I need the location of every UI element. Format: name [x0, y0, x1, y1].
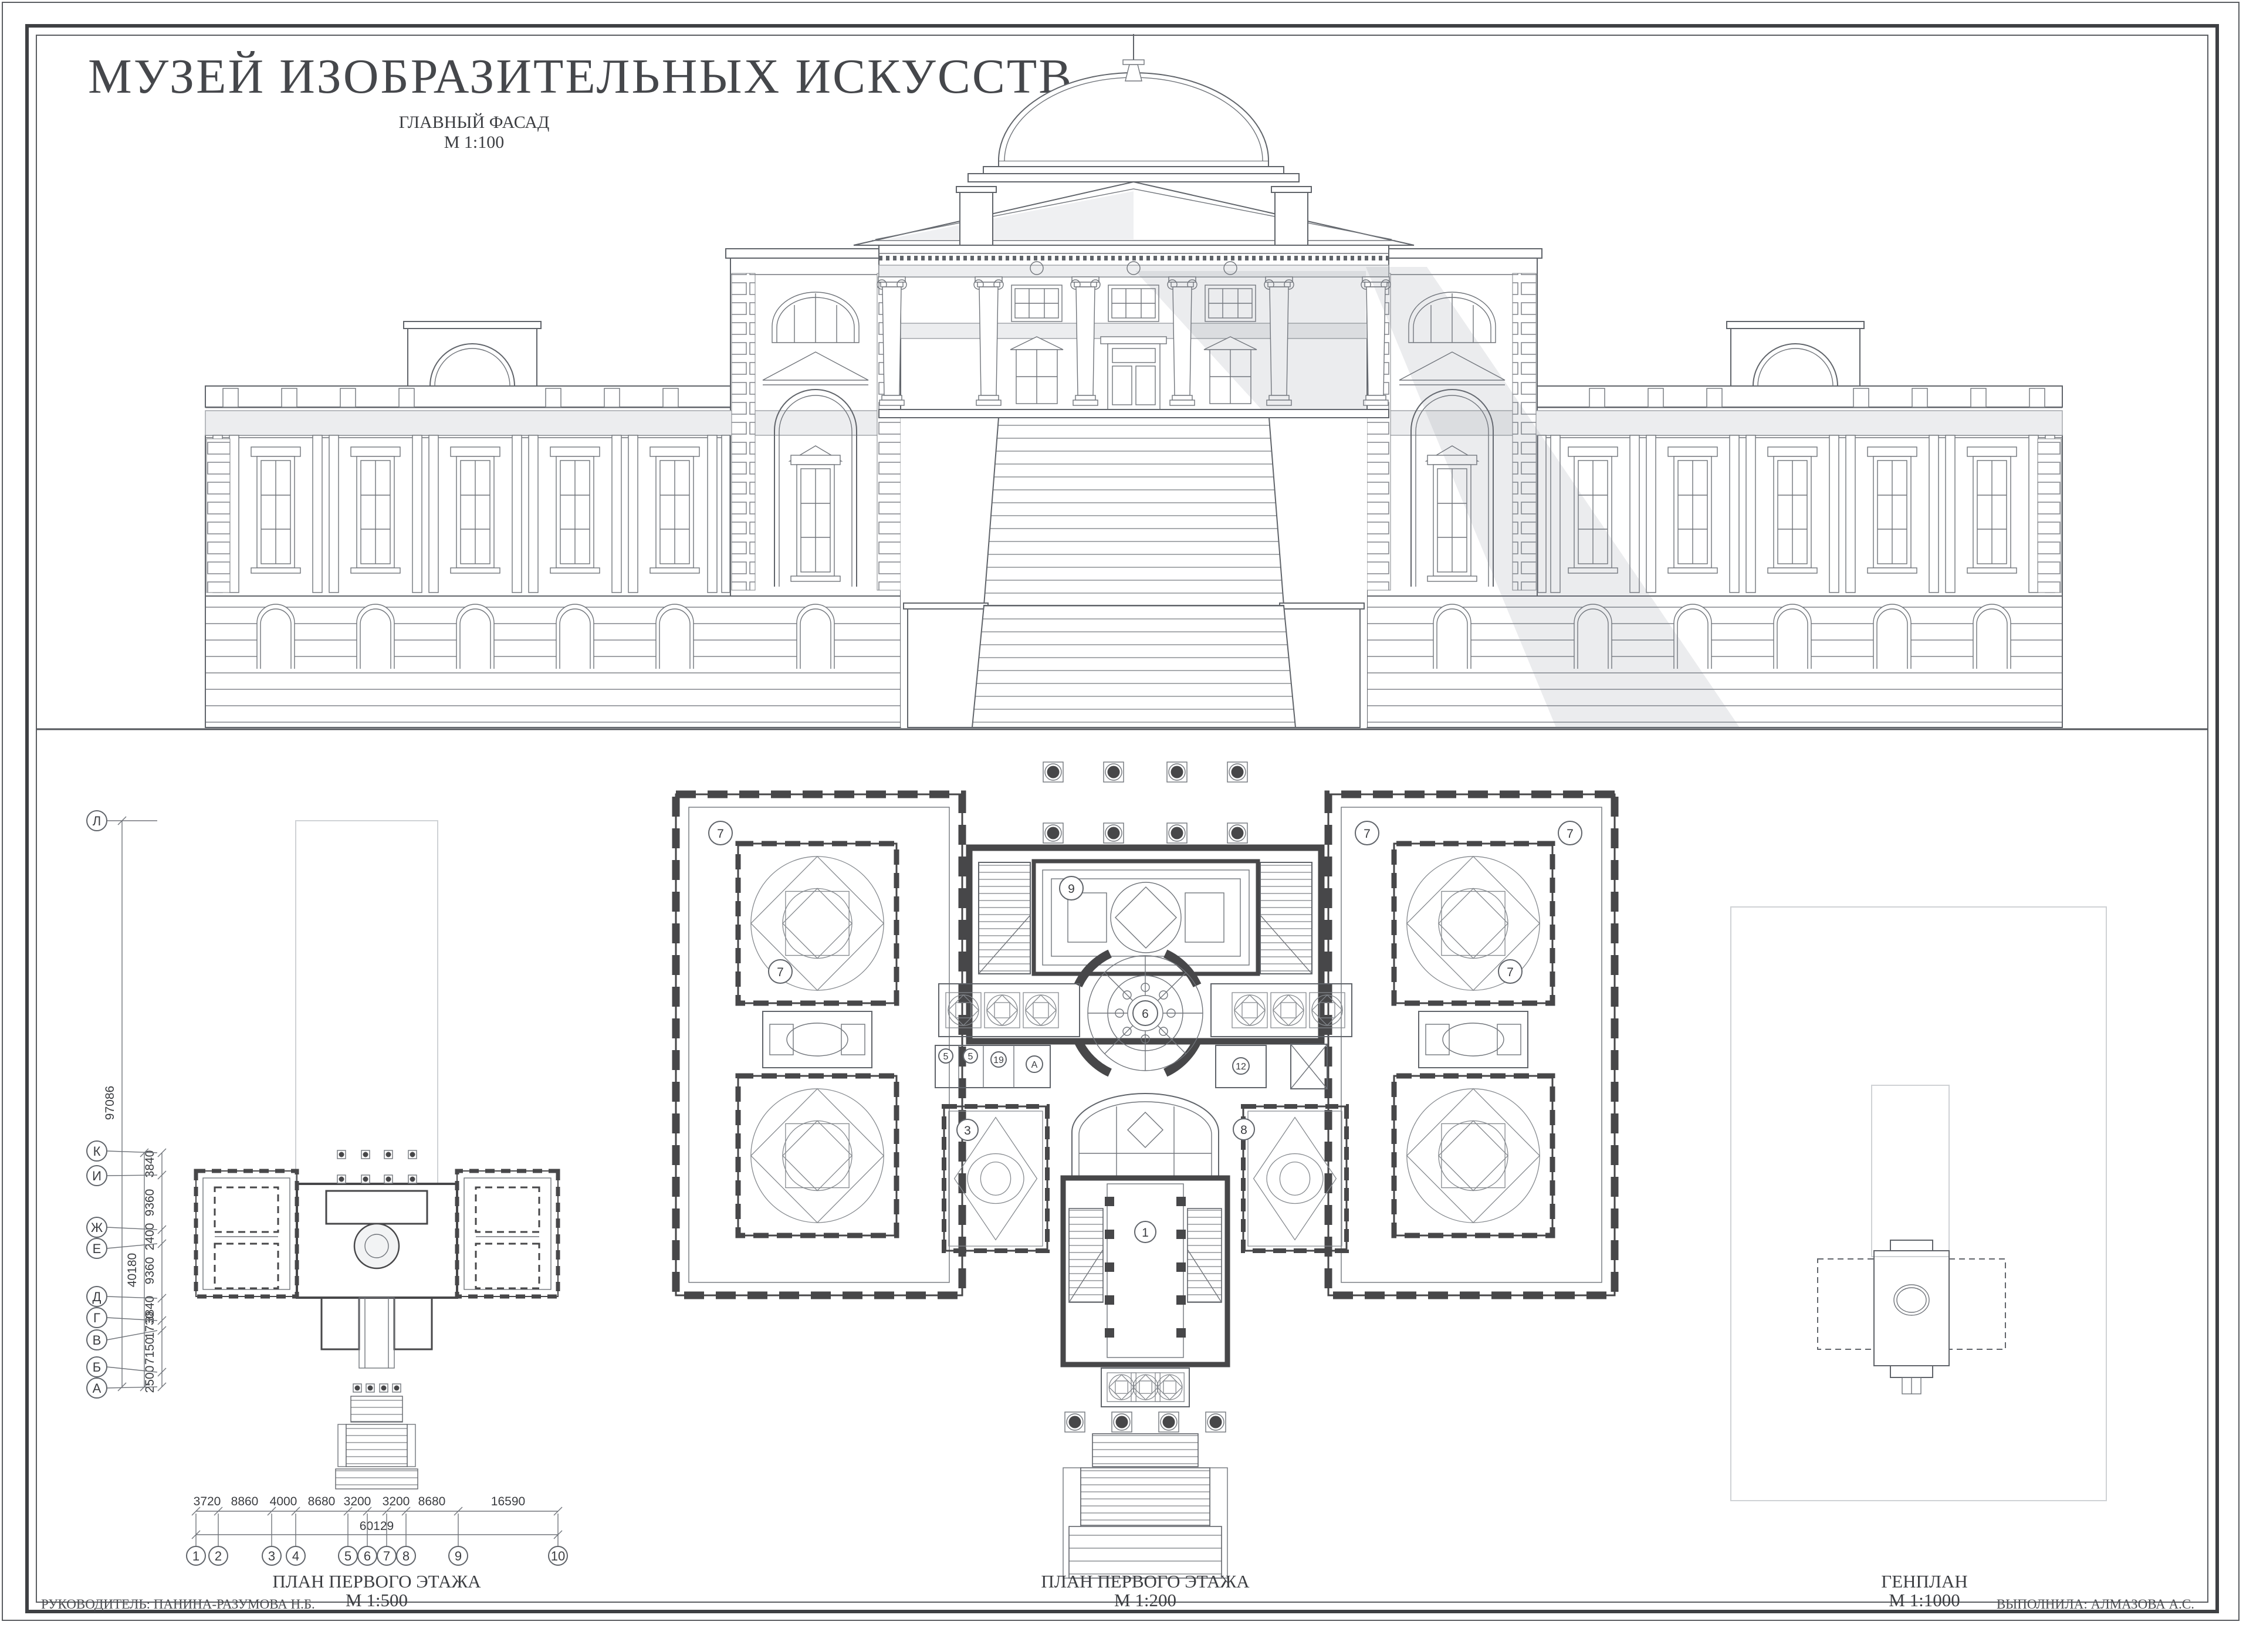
axis-row-label: Г [93, 1311, 100, 1325]
axis-col-label: 6 [364, 1549, 371, 1563]
dim-row-seg: 2500 [143, 1366, 157, 1393]
axis-col-label: 2 [215, 1549, 222, 1563]
facade-scale: М 1:100 [444, 133, 505, 152]
axis-col-label: 3 [268, 1549, 275, 1563]
room-label: 5 [968, 1052, 973, 1062]
axis-col-label: 9 [455, 1549, 462, 1563]
axis-row-label: Ж [91, 1220, 103, 1235]
plan200-scale: М 1:200 [1114, 1590, 1176, 1610]
axis-row-label: Б [93, 1360, 101, 1375]
dim-row-seg: 2400 [143, 1223, 157, 1251]
axis-row-label: В [93, 1333, 102, 1348]
axis-col-label: 8 [402, 1549, 410, 1563]
captions: ПЛАН ПЕРВОГО ЭТАЖА М 1:500 ПЛАН ПЕРВОГО … [272, 1571, 1967, 1610]
drawing-sheet: МУЗЕЙ ИЗОБРАЗИТЕЛЬНЫХ ИСКУССТВ ГЛАВНЫЙ Ф… [0, 0, 2253, 1652]
vestibule-columns [1105, 1197, 1186, 1338]
room-label: 7 [1364, 827, 1371, 841]
row-axis: 97086 40180 3840 9360 2400 9360 3840 173… [87, 811, 166, 1398]
axis-col-label: 1 [192, 1549, 199, 1563]
room-label: 8 [1240, 1123, 1247, 1137]
axis-col-label: 4 [292, 1549, 299, 1563]
sheet-canvas: МУЗЕЙ ИЗОБРАЗИТЕЛЬНЫХ ИСКУССТВ ГЛАВНЫЙ Ф… [0, 0, 2253, 1652]
col-axis: 3720 8860 4000 8680 3200 3200 8680 16590… [187, 1495, 567, 1565]
axis-col-label: 5 [344, 1549, 351, 1563]
room-label: 7 [1567, 827, 1574, 841]
axis-row-label: Л [93, 814, 101, 828]
dim-col-seg: 3200 [383, 1495, 410, 1508]
genplan-scale: М 1:1000 [1889, 1590, 1960, 1610]
dim-row-seg: 9360 [143, 1189, 157, 1217]
dim-col-seg: 8680 [308, 1495, 336, 1508]
axis-col-label: 10 [551, 1549, 565, 1563]
room-label: 7 [717, 827, 724, 841]
room-label: 19 [993, 1055, 1004, 1065]
room-label: 1 [1142, 1226, 1149, 1240]
dim-col-seg: 4000 [270, 1495, 297, 1508]
room-label: 5 [943, 1052, 949, 1062]
dim-row-total-inner: 40180 [126, 1253, 139, 1287]
dim-row-seg: 1730 [143, 1312, 157, 1339]
credit-supervisor: РУКОВОДИТЕЛЬ: ПАНИНА-РАЗУМОВА Н.Б. [41, 1597, 315, 1612]
plan500-title: ПЛАН ПЕРВОГО ЭТАЖА [272, 1571, 481, 1592]
axis-row-label: Е [93, 1241, 102, 1256]
room-label: 7 [1507, 966, 1514, 979]
dim-row-seg: 9360 [143, 1257, 157, 1285]
plan-200: 7 7 7 7 7 9 6 5 5 19 А 12 3 8 1 [676, 762, 1615, 1578]
facade-elevation [36, 34, 2208, 729]
genplan-title: ГЕНПЛАН [1881, 1571, 1967, 1592]
axis-col-label: 7 [383, 1549, 390, 1563]
axis-row-label: Д [93, 1289, 102, 1304]
genplan [1731, 907, 2106, 1501]
axis-row-label: К [93, 1144, 101, 1159]
credit-author: ВЫПОЛНИЛА: АЛМАЗОВА А.С. [1997, 1597, 2194, 1612]
dim-row-seg: 3840 [143, 1150, 157, 1178]
axis-row-label: А [93, 1381, 102, 1396]
page-title: МУЗЕЙ ИЗОБРАЗИТЕЛЬНЫХ ИСКУССТВ [88, 49, 1073, 104]
room-label: 7 [777, 966, 784, 979]
dim-row-total-outer: 97086 [103, 1086, 117, 1120]
dim-row-seg: 7150 [143, 1338, 157, 1365]
room-label: 3 [964, 1124, 971, 1138]
room-label: 6 [1142, 1007, 1149, 1021]
dim-col-total: 60129 [360, 1519, 394, 1533]
plan200-title: ПЛАН ПЕРВОГО ЭТАЖА [1041, 1571, 1250, 1592]
plan-500 [196, 821, 558, 1489]
dim-col-seg: 16590 [491, 1495, 525, 1508]
room-label: А [1031, 1060, 1038, 1070]
dim-col-seg: 3720 [194, 1495, 221, 1508]
dim-col-seg: 8860 [231, 1495, 259, 1508]
facade-caption: ГЛАВНЫЙ ФАСАД М 1:100 [399, 113, 550, 152]
dim-col-seg: 3200 [344, 1495, 371, 1508]
plan500-scale: М 1:500 [346, 1590, 408, 1610]
axis-row-label: И [92, 1169, 102, 1183]
courtyard-outline [296, 821, 438, 1184]
room-label: 9 [1068, 882, 1075, 896]
dim-col-seg: 8680 [418, 1495, 446, 1508]
room-label: 12 [1236, 1062, 1246, 1072]
facade-title: ГЛАВНЫЙ ФАСАД [399, 113, 550, 132]
